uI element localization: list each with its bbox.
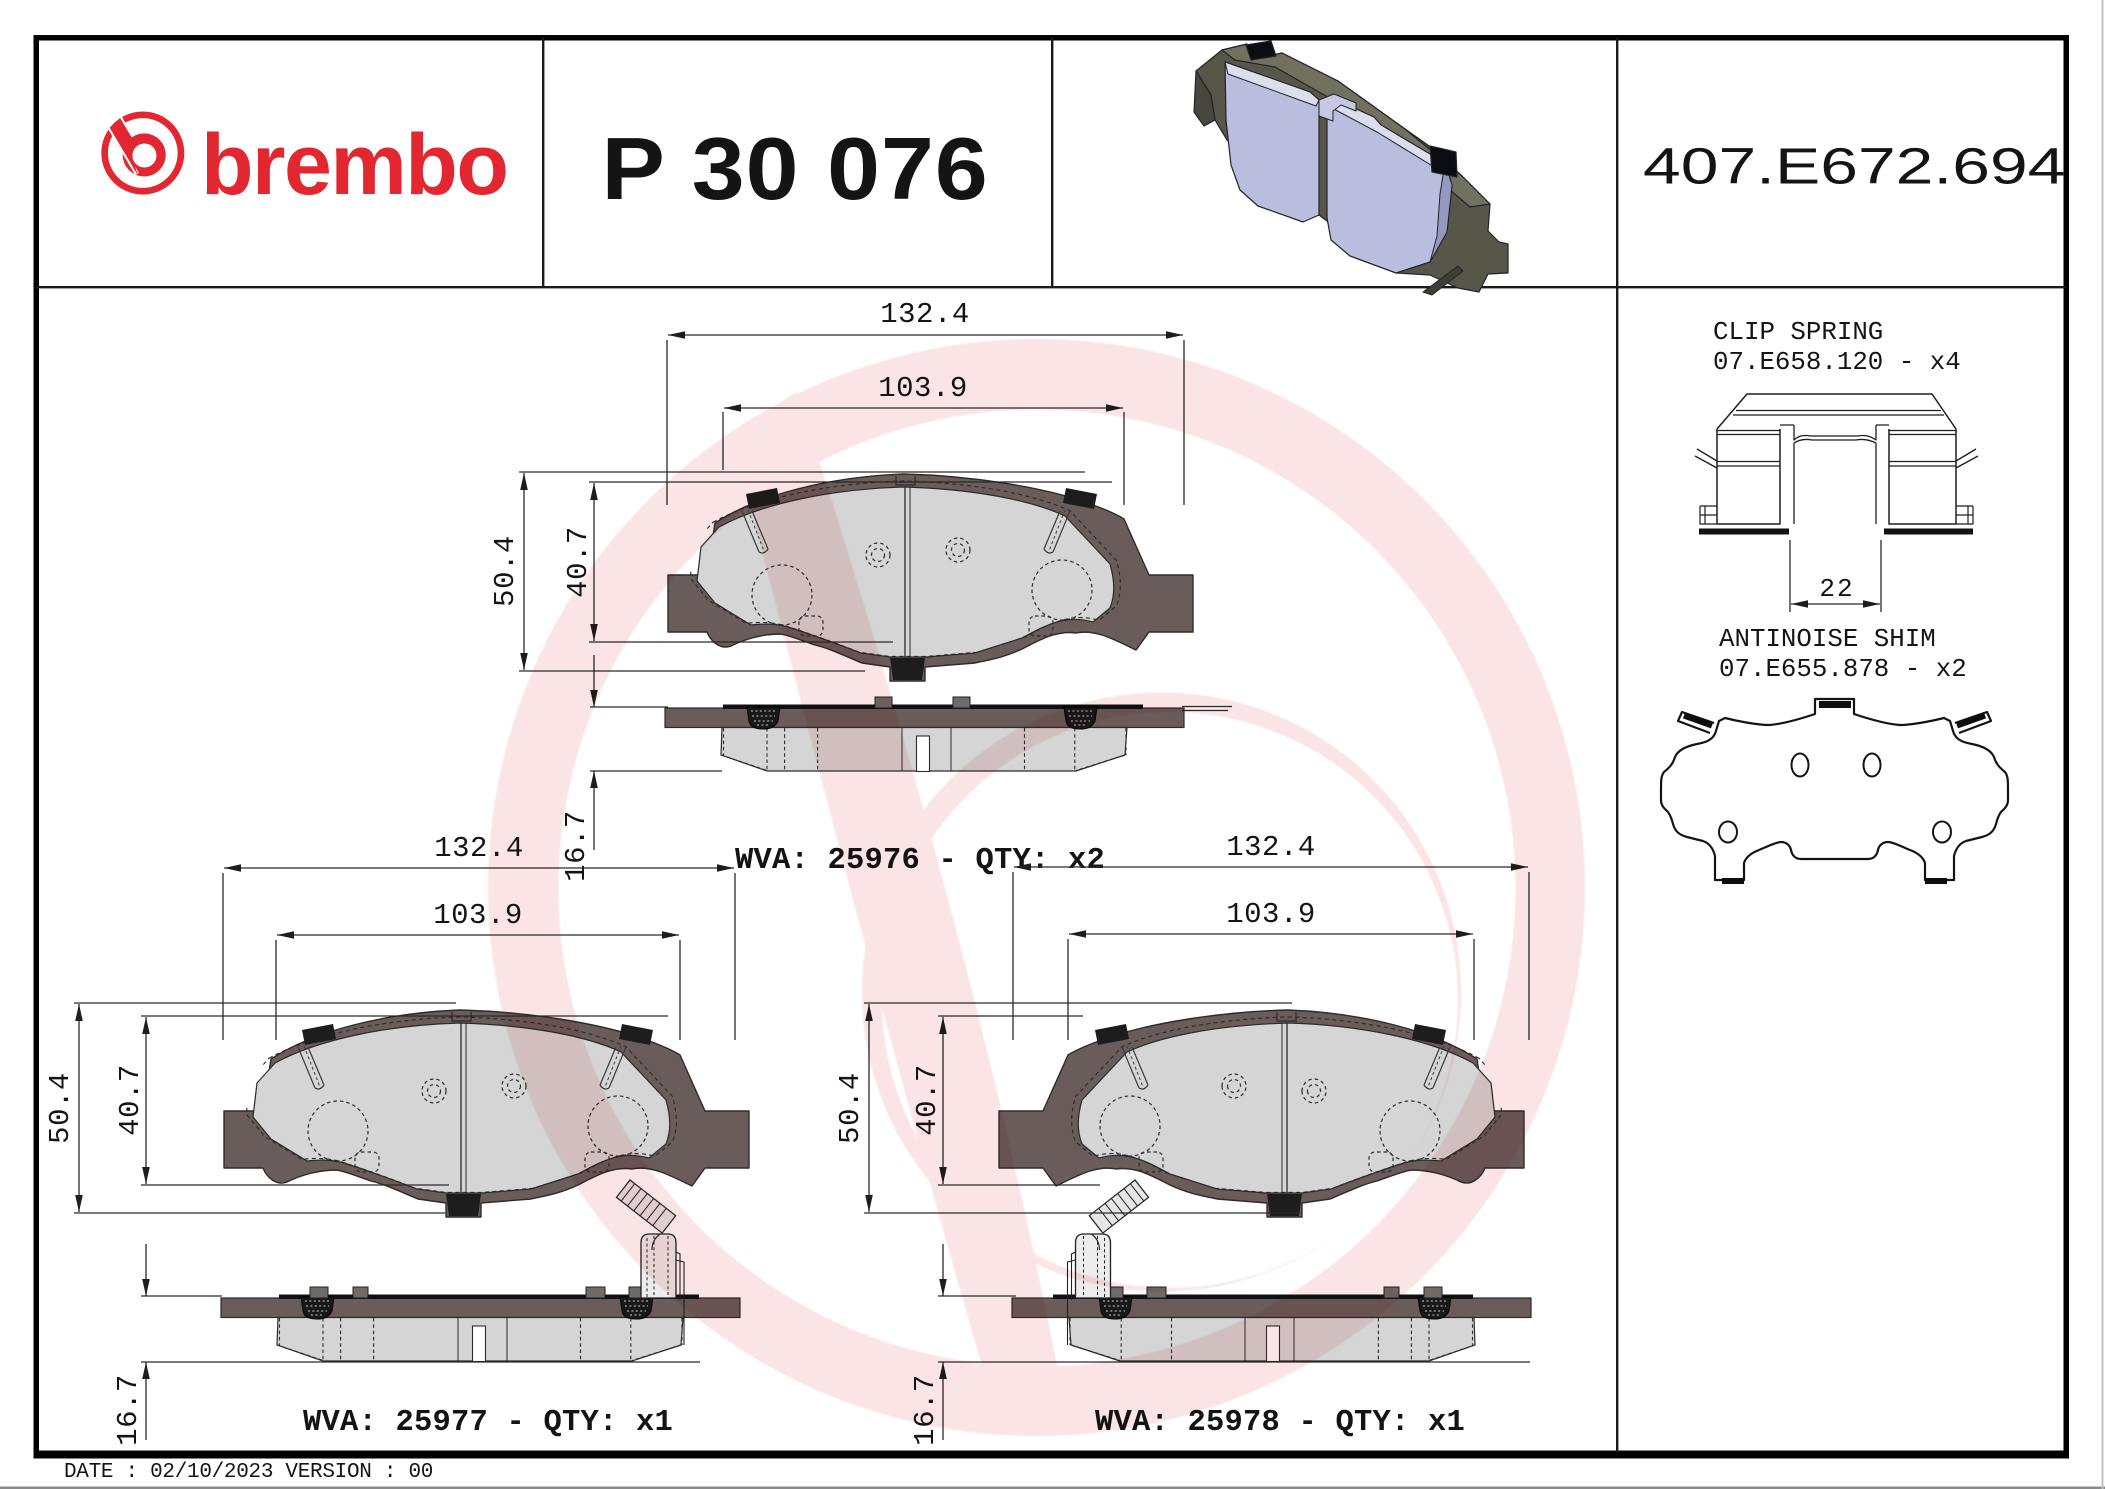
svg-text:407.E672.694: 407.E672.694	[1643, 138, 2065, 195]
svg-text:P 30 076: P 30 076	[602, 120, 989, 218]
svg-text:40.7: 40.7	[114, 1064, 147, 1136]
svg-text:brembo: brembo	[201, 117, 507, 213]
svg-text:16.7: 16.7	[112, 1374, 145, 1446]
svg-text:07.E655.878 - x2: 07.E655.878 - x2	[1719, 655, 1967, 684]
svg-text:50.4: 50.4	[834, 1072, 867, 1144]
svg-text:ANTINOISE SHIM: ANTINOISE SHIM	[1719, 625, 1936, 654]
svg-text:50.4: 50.4	[44, 1072, 77, 1144]
svg-text:132.4: 132.4	[880, 298, 970, 331]
svg-text:DATE : 02/10/2023 VERSION : 00: DATE : 02/10/2023 VERSION : 00	[64, 1461, 433, 1484]
svg-text:50.4: 50.4	[489, 535, 522, 607]
svg-text:07.E658.120 - x4: 07.E658.120 - x4	[1713, 348, 1961, 377]
svg-text:103.9: 103.9	[1226, 898, 1316, 931]
svg-text:132.4: 132.4	[1226, 831, 1316, 864]
svg-text:22: 22	[1819, 574, 1854, 604]
svg-text:WVA: 25977 - QTY: x1: WVA: 25977 - QTY: x1	[303, 1406, 673, 1440]
svg-text:CLIP SPRING: CLIP SPRING	[1713, 318, 1883, 347]
svg-text:16.7: 16.7	[560, 810, 593, 882]
